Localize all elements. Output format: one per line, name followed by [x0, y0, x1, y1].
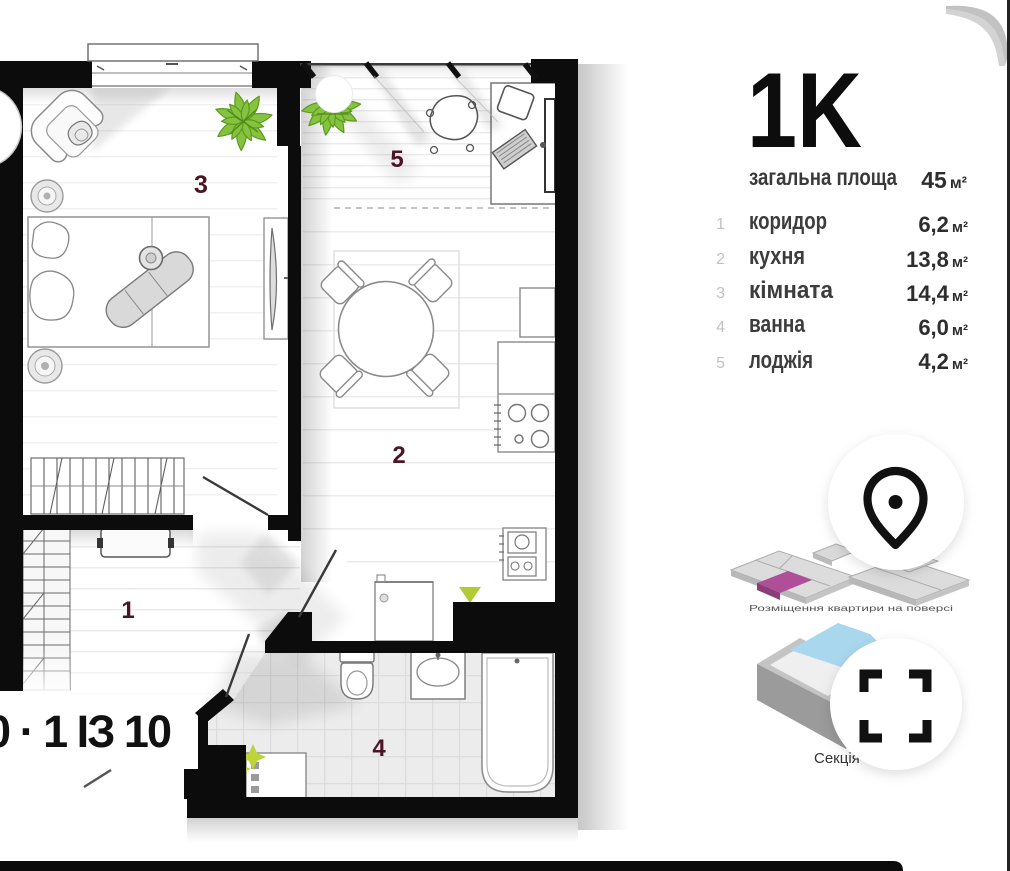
svg-text:1: 1 — [121, 597, 134, 624]
svg-text:4: 4 — [372, 735, 386, 762]
svg-text:ванна: ванна — [749, 311, 806, 338]
svg-text:2: 2 — [716, 251, 725, 268]
svg-text:лоджія: лоджія — [749, 347, 813, 374]
svg-text:кухня: кухня — [749, 243, 805, 270]
svg-text:3: 3 — [716, 285, 725, 302]
svg-text:коридор: коридор — [749, 208, 827, 235]
svg-text:кімната: кімната — [749, 277, 834, 304]
svg-text:1: 1 — [716, 216, 725, 233]
svg-text:1K: 1K — [747, 50, 862, 170]
svg-text:3: 3 — [194, 171, 208, 199]
svg-text:2: 2 — [392, 442, 405, 469]
svg-text:4: 4 — [716, 319, 725, 336]
svg-text:5: 5 — [716, 355, 725, 372]
svg-text:загальна площа: загальна площа — [749, 164, 897, 190]
svg-text:5: 5 — [390, 146, 403, 173]
svg-text:0 · 1 ІЗ 10: 0 · 1 ІЗ 10 — [0, 706, 172, 757]
svg-text:Розміщення квартири на поверсі: Розміщення квартири на поверсі — [749, 603, 953, 613]
